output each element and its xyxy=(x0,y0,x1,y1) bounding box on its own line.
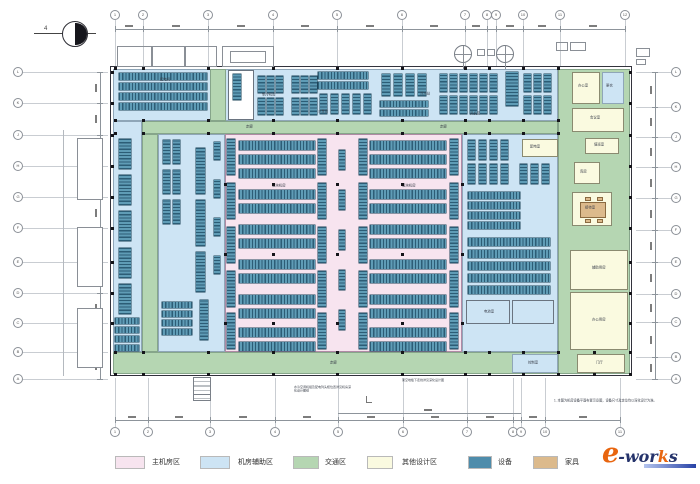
logo-underline xyxy=(644,464,696,468)
grid-bubble-label: 4 xyxy=(270,430,280,435)
grid-bubble: J xyxy=(671,132,681,142)
column-dot xyxy=(461,253,464,256)
legend-item-equipment: 设备 xyxy=(468,455,512,469)
eworks-logo: e-works xyxy=(602,438,698,472)
equipment-rack xyxy=(468,250,550,258)
column-dot xyxy=(522,373,525,376)
equipment-rack xyxy=(239,260,315,269)
equipment-rack xyxy=(380,110,428,116)
column-dot xyxy=(629,373,632,376)
column-dot xyxy=(593,373,596,376)
equipment-rack xyxy=(214,218,220,236)
grid-bubble: K xyxy=(13,98,23,108)
room-other-1 xyxy=(572,72,600,104)
equipment-rack xyxy=(359,271,367,307)
column-dot xyxy=(629,165,632,168)
line xyxy=(650,336,652,344)
equipment-rack xyxy=(267,76,274,93)
equipment-rack xyxy=(450,139,458,175)
equipment-rack xyxy=(239,274,315,283)
equipment-rack xyxy=(460,74,467,92)
grid-bubble-label: J xyxy=(13,133,23,138)
column-dot xyxy=(272,67,275,70)
line xyxy=(655,72,656,379)
equipment-rack xyxy=(370,260,446,269)
equipment-rack xyxy=(227,139,235,175)
equipment-rack xyxy=(119,103,207,110)
equipment-rack xyxy=(163,170,170,194)
grid-bubble: B xyxy=(671,352,681,362)
equipment-rack xyxy=(310,76,317,93)
equipment-rack xyxy=(370,239,446,248)
legend-label: 其他设计区 xyxy=(402,457,437,467)
equipment-rack xyxy=(318,183,326,219)
canopy-4-inner xyxy=(230,51,266,63)
grid-bubble-label: L xyxy=(671,70,681,75)
equipment-rack xyxy=(450,74,457,92)
line xyxy=(650,148,652,156)
equipment-rack xyxy=(119,211,131,241)
column-dot xyxy=(272,132,275,135)
line xyxy=(505,46,506,62)
room-label: 会议室 xyxy=(590,116,630,120)
grid-bubble-label: 11 xyxy=(555,13,565,18)
grid-bubble-label: E xyxy=(671,260,681,265)
equipment-rack xyxy=(359,139,367,175)
grid-bubble-label: H xyxy=(13,164,23,169)
legend-swatch-aux xyxy=(200,456,230,469)
equipment-rack xyxy=(394,74,402,96)
equipment-rack xyxy=(115,345,139,351)
line xyxy=(23,293,108,294)
room-label: 辅助用房 xyxy=(592,266,632,270)
column-dot xyxy=(464,351,467,354)
equipment-rack xyxy=(267,98,274,115)
room-label: 配电间 xyxy=(160,78,200,82)
equipment-rack xyxy=(544,96,551,114)
column-dot xyxy=(401,119,404,122)
equipment-rack xyxy=(239,190,315,199)
equipment-rack xyxy=(214,256,220,274)
grid-bubble: G xyxy=(671,193,681,203)
equipment-rack xyxy=(370,342,446,351)
line xyxy=(95,209,97,217)
line xyxy=(650,304,652,312)
equipment-rack xyxy=(531,164,538,184)
column-dot xyxy=(522,132,525,135)
column-dot xyxy=(114,67,117,70)
equipment-rack xyxy=(339,310,345,330)
equipment-rack xyxy=(450,227,458,263)
column-dot xyxy=(336,132,339,135)
furniture-chair xyxy=(597,219,603,223)
grid-bubble: E xyxy=(13,257,23,267)
equipment-rack xyxy=(119,175,131,205)
column-dot xyxy=(142,132,145,135)
equipment-rack xyxy=(480,74,487,92)
grid-bubble: 1 xyxy=(110,10,120,20)
grid-bubble-label: L xyxy=(13,70,23,75)
column-dot xyxy=(224,322,227,325)
grid-bubble: 12 xyxy=(620,10,630,20)
column-dot xyxy=(401,67,404,70)
grid-bubble: 4 xyxy=(270,427,280,437)
equipment-rack xyxy=(239,239,315,248)
room-label: 走廊 xyxy=(330,361,370,365)
line xyxy=(472,25,480,27)
room-label: 控制室 xyxy=(528,361,568,365)
equipment-rack xyxy=(501,164,508,184)
column-dot xyxy=(629,351,632,354)
column-dot xyxy=(522,119,525,122)
equipment-rack xyxy=(162,302,192,308)
line xyxy=(95,84,97,92)
line xyxy=(115,420,620,421)
column-dot xyxy=(522,67,525,70)
equipment-rack xyxy=(196,148,205,194)
canopy-1 xyxy=(117,46,152,67)
grid-bubble-label: 1 xyxy=(110,430,120,435)
column-dot xyxy=(593,351,596,354)
column-dot xyxy=(629,71,632,74)
equipment-rack xyxy=(318,82,368,89)
equipment-rack xyxy=(119,284,131,314)
equipment-rack xyxy=(258,76,265,93)
grid-bubble: 7 xyxy=(460,10,470,20)
equipment-rack xyxy=(318,72,368,79)
equipment-rack xyxy=(382,74,390,96)
legend-label: 家具 xyxy=(565,457,579,467)
equipment-rack xyxy=(370,204,446,213)
equipment-rack xyxy=(370,169,446,178)
equipment-rack xyxy=(239,342,315,351)
equipment-rack xyxy=(450,183,458,219)
legend-label: 交通区 xyxy=(325,457,346,467)
grid-bubble: A xyxy=(671,374,681,384)
column-dot xyxy=(272,183,275,186)
grid-bubble-label: 3 xyxy=(205,430,215,435)
room-label: 配电室 xyxy=(530,145,570,149)
column-dot xyxy=(111,165,114,168)
furniture-chair xyxy=(597,197,603,201)
grid-bubble: 1 xyxy=(110,427,120,437)
column-dot xyxy=(272,322,275,325)
equipment-rack xyxy=(196,252,205,292)
grid-bubble-label: J xyxy=(671,135,681,140)
legend-item-aux: 机房辅助区 xyxy=(200,455,273,469)
equipment-rack xyxy=(380,101,428,107)
roof-unit xyxy=(636,48,650,57)
equipment-rack xyxy=(544,74,551,92)
equipment-rack xyxy=(239,328,315,337)
grid-bubble-label: 2 xyxy=(143,430,153,435)
equipment-rack xyxy=(301,76,308,93)
equipment-rack xyxy=(440,74,447,92)
grid-bubble-label: 4 xyxy=(268,13,278,18)
column-dot xyxy=(111,261,114,264)
equipment-rack xyxy=(227,183,235,219)
equipment-rack xyxy=(468,286,550,294)
grid-bubble: C xyxy=(671,317,681,327)
column-dot xyxy=(629,261,632,264)
grid-bubble: J xyxy=(13,130,23,140)
column-dot xyxy=(336,119,339,122)
column-dot xyxy=(401,373,404,376)
grid-bubble: H xyxy=(13,161,23,171)
legend-label: 设备 xyxy=(498,457,512,467)
equipment-rack xyxy=(370,328,446,337)
entrance-steps xyxy=(193,377,211,401)
grid-bubble-label: 10 xyxy=(540,430,550,435)
grid-bubble: L xyxy=(13,67,23,77)
equipment-rack xyxy=(318,139,326,175)
grid-bubble-label: 9 xyxy=(516,430,526,435)
column-dot xyxy=(401,132,404,135)
grid-bubble-label: 7 xyxy=(460,13,470,18)
roof-unit xyxy=(570,42,586,51)
grid-bubble-label: 5 xyxy=(333,430,343,435)
equipment-rack xyxy=(196,200,205,246)
equipment-rack xyxy=(450,96,457,114)
equipment-rack xyxy=(501,140,508,160)
line xyxy=(431,416,439,418)
column-dot xyxy=(629,196,632,199)
column-dot xyxy=(464,132,467,135)
equipment-rack xyxy=(200,300,208,340)
equipment-rack xyxy=(339,190,345,210)
line xyxy=(625,26,626,32)
column-dot xyxy=(464,119,467,122)
line xyxy=(366,402,372,403)
column-dot xyxy=(114,373,117,376)
equipment-rack xyxy=(359,313,367,349)
line xyxy=(650,179,652,187)
legend-item-main-room: 主机房区 xyxy=(115,455,180,469)
grid-bubble-label: A xyxy=(13,377,23,382)
line xyxy=(303,416,311,418)
line xyxy=(650,274,652,282)
grid-bubble-label: 3 xyxy=(203,13,213,18)
equipment-rack xyxy=(370,309,446,318)
equipment-rack xyxy=(276,76,283,93)
grid-bubble: 9 xyxy=(491,10,501,20)
equipment-rack xyxy=(233,74,241,100)
equipment-rack xyxy=(239,169,315,178)
furniture-chair xyxy=(585,219,591,223)
grid-bubble: 10 xyxy=(540,427,550,437)
equipment-rack xyxy=(524,74,531,92)
column-dot xyxy=(336,253,339,256)
column-dot xyxy=(142,351,145,354)
room-label: 冷冻站 xyxy=(420,92,460,96)
equipment-rack xyxy=(173,140,180,164)
grid-bubble: 4 xyxy=(268,10,278,20)
grid-bubble-label: G xyxy=(671,196,681,201)
line xyxy=(650,242,652,250)
grid-bubble-label: F xyxy=(13,226,23,231)
column-dot xyxy=(488,373,491,376)
equipment-rack xyxy=(162,329,192,335)
equipment-rack xyxy=(239,225,315,234)
column-dot xyxy=(272,119,275,122)
equipment-rack xyxy=(318,227,326,263)
equipment-rack xyxy=(301,98,308,115)
grid-bubble-label: 6 xyxy=(398,430,408,435)
column-dot xyxy=(111,322,114,325)
grid-bubble-label: E xyxy=(13,260,23,265)
equipment-rack xyxy=(359,227,367,263)
equipment-rack xyxy=(470,74,477,92)
equipment-rack xyxy=(440,96,447,114)
column-dot xyxy=(336,67,339,70)
grid-bubble: F xyxy=(13,223,23,233)
column-dot xyxy=(401,351,404,354)
column-dot xyxy=(401,322,404,325)
roof-unit xyxy=(636,59,646,65)
line xyxy=(650,364,652,372)
grid-bubble-label: 11 xyxy=(615,430,625,435)
column-dot xyxy=(207,132,210,135)
grid-bubble: K xyxy=(671,102,681,112)
line xyxy=(301,25,309,27)
column-dot xyxy=(488,119,491,122)
equipment-rack xyxy=(115,336,139,342)
dock-1 xyxy=(77,138,103,200)
equipment-rack xyxy=(370,155,446,164)
line xyxy=(579,416,587,418)
equipment-rack xyxy=(318,313,326,349)
equipment-rack xyxy=(450,313,458,349)
grid-bubble: 6 xyxy=(398,427,408,437)
equipment-rack xyxy=(276,98,283,115)
floorplan-drawing: 4 1234567891011121234567891011LKJHGFEDCB… xyxy=(0,0,700,484)
roof-unit xyxy=(556,42,568,51)
equipment-rack xyxy=(468,202,520,209)
room-label: 风机房 xyxy=(470,112,510,116)
equipment-rack xyxy=(163,200,170,224)
grid-bubble: 3 xyxy=(205,427,215,437)
line xyxy=(338,413,521,414)
equipment-rack xyxy=(406,74,414,96)
legend-swatch-traffic xyxy=(293,456,319,469)
room-other-6 xyxy=(570,250,628,290)
grid-bubble-label: H xyxy=(671,165,681,170)
equipment-rack xyxy=(490,74,497,92)
column-dot xyxy=(401,253,404,256)
equipment-rack xyxy=(119,83,207,90)
equipment-rack xyxy=(239,204,315,213)
grid-bubble-label: F xyxy=(671,228,681,233)
equipment-rack xyxy=(339,150,345,170)
grid-bubble: 5 xyxy=(333,427,343,437)
legend-item-furniture: 家具 xyxy=(533,455,579,469)
room-sub-top xyxy=(228,70,254,120)
equipment-rack xyxy=(339,230,345,250)
equipment-rack xyxy=(534,74,541,92)
grid-bubble: 2 xyxy=(138,10,148,20)
column-dot xyxy=(272,351,275,354)
column-dot xyxy=(336,183,339,186)
grid-bubble: F xyxy=(671,225,681,235)
grid-bubble: 11 xyxy=(555,10,565,20)
equipment-rack xyxy=(450,271,458,307)
grid-bubble: E xyxy=(671,257,681,267)
grid-bubble-label: B xyxy=(671,355,681,360)
column-dot xyxy=(111,196,114,199)
column-dot xyxy=(557,132,560,135)
dock-3 xyxy=(77,308,103,368)
legend-label: 机房辅助区 xyxy=(238,457,273,467)
line xyxy=(23,379,108,380)
grid-bubble-label: G xyxy=(13,195,23,200)
line xyxy=(424,409,432,411)
equipment-rack xyxy=(490,164,497,184)
column-dot xyxy=(522,351,525,354)
furniture-table xyxy=(580,202,606,218)
equipment-rack xyxy=(468,274,550,282)
equipment-rack xyxy=(214,142,220,160)
column-dot xyxy=(142,67,145,70)
line xyxy=(23,135,108,136)
grid-bubble-label: C xyxy=(671,320,681,325)
legend-swatch-equipment xyxy=(468,456,492,469)
equipment-rack xyxy=(370,225,446,234)
room-other-2 xyxy=(572,108,624,132)
grid-bubble: 3 xyxy=(203,10,213,20)
note-2: 架空地板下走线详见深化设计图 xyxy=(402,379,448,382)
grid-bubble-label: 1 xyxy=(110,13,120,18)
line xyxy=(430,25,438,27)
column-dot xyxy=(629,227,632,230)
room-label: 电池室 xyxy=(484,310,524,314)
column-dot xyxy=(207,119,210,122)
dock-2 xyxy=(77,227,103,287)
room-label: 走廊 xyxy=(246,125,286,129)
pipe-box xyxy=(477,49,485,56)
equipment-rack xyxy=(524,96,531,114)
equipment-rack xyxy=(359,183,367,219)
grid-bubble-label: C xyxy=(13,321,23,326)
grid-bubble-label: 9 xyxy=(491,13,501,18)
line xyxy=(97,379,103,380)
line xyxy=(23,103,108,104)
column-dot xyxy=(488,67,491,70)
line xyxy=(506,25,514,27)
equipment-rack xyxy=(115,327,139,333)
equipment-rack xyxy=(119,139,131,169)
equipment-rack xyxy=(468,192,520,199)
column-dot xyxy=(401,183,404,186)
grid-bubble-label: A xyxy=(671,377,681,382)
equipment-rack xyxy=(214,180,220,198)
grid-bubble: 2 xyxy=(143,427,153,437)
line xyxy=(650,210,652,218)
grid-bubble-label: D xyxy=(671,292,681,297)
equipment-rack xyxy=(468,164,475,184)
equipment-rack xyxy=(468,140,475,160)
legend-label: 主机房区 xyxy=(152,457,180,467)
line xyxy=(652,379,658,380)
grid-bubble: L xyxy=(671,67,681,77)
grid-bubble: 5 xyxy=(332,10,342,20)
grid-bubble: G xyxy=(13,192,23,202)
grid-bubble-label: 5 xyxy=(332,13,342,18)
grid-bubble: H xyxy=(671,162,681,172)
equipment-rack xyxy=(173,170,180,194)
column-dot xyxy=(272,253,275,256)
column-dot xyxy=(207,67,210,70)
grid-bubble: C xyxy=(13,318,23,328)
